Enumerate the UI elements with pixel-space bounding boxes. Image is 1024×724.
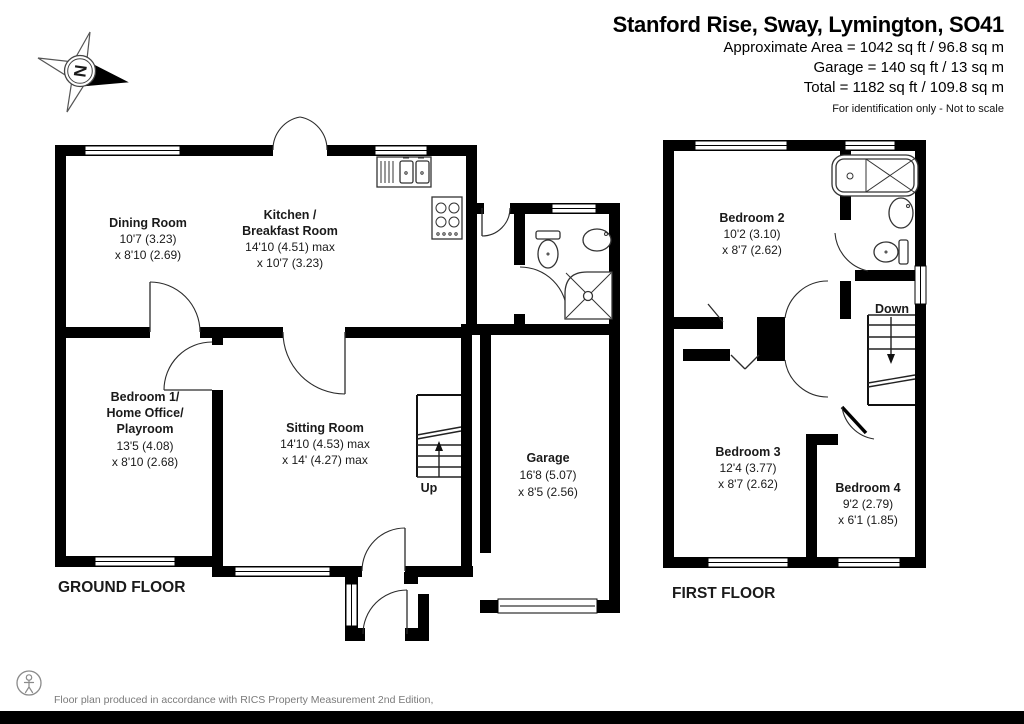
ground-floor-plan: Dining Room 10'7 (3.23) x 8'10 (2.69) Ki… — [55, 117, 620, 641]
bedroom3-label: Bedroom 3 — [715, 445, 780, 459]
bathtub-icon — [832, 155, 918, 196]
first-floor-plan: Bedroom 2 10'2 (3.10) x 8'7 (2.62) Bedro… — [663, 140, 926, 602]
ground-floor-room-labels: Dining Room 10'7 (3.23) x 8'10 (2.69) Ki… — [106, 208, 577, 499]
footer-line-1: Floor plan produced in accordance with R… — [54, 694, 558, 707]
bedroom3-dim1: 12'4 (3.77) — [720, 461, 777, 475]
dining-room-label: Dining Room — [109, 216, 187, 230]
bedroom3-dim2: x 8'7 (2.62) — [718, 477, 778, 491]
sitting-room-dim1: 14'10 (4.53) max — [280, 437, 370, 451]
first-floor-doors — [708, 233, 874, 439]
bedroom2-dim1: 10'2 (3.10) — [724, 227, 781, 241]
bedroom4-label: Bedroom 4 — [835, 481, 900, 495]
bedroom2-label: Bedroom 2 — [719, 211, 784, 225]
first-floor-stairs — [868, 315, 915, 405]
ground-floor-title: GROUND FLOOR — [58, 579, 185, 596]
stairs-down-label: Down — [875, 302, 909, 316]
bedroom2-dim2: x 8'7 (2.62) — [722, 243, 782, 257]
total-area-line: Total = 1182 sq ft / 109.8 sq m — [613, 78, 1004, 98]
header-block: Stanford Rise, Sway, Lymington, SO41 App… — [613, 12, 1004, 115]
bedroom1-dim2: x 8'10 (2.68) — [112, 455, 178, 469]
ground-floor-stairs — [417, 395, 461, 477]
person-icon — [16, 668, 42, 698]
sitting-room-dim2: x 14' (4.27) max — [282, 453, 368, 467]
page-title: Stanford Rise, Sway, Lymington, SO41 — [613, 12, 1004, 38]
compass-rose-icon: N — [38, 32, 127, 112]
bedroom1-label-3: Playroom — [117, 422, 174, 436]
dining-room-dim1: 10'7 (3.23) — [120, 232, 177, 246]
garage-area-line: Garage = 140 sq ft / 13 sq m — [613, 58, 1004, 78]
kitchen-dim1: 14'10 (4.51) max — [245, 240, 335, 254]
dining-room-dim2: x 8'10 (2.69) — [115, 248, 181, 262]
floorplan-page: Stanford Rise, Sway, Lymington, SO41 App… — [0, 0, 1024, 724]
disclaimer-text: For identification only - Not to scale — [613, 103, 1004, 115]
kitchen-dim2: x 10'7 (3.23) — [257, 256, 323, 270]
kitchen-label-1: Kitchen / — [264, 208, 317, 222]
bottom-black-bar — [0, 711, 1024, 724]
bathroom-basin-icon — [889, 198, 913, 228]
kitchen-sink-icon — [377, 157, 431, 187]
bedroom1-label-1: Bedroom 1/ — [111, 390, 180, 404]
approx-area-line: Approximate Area = 1042 sq ft / 96.8 sq … — [613, 38, 1004, 58]
shower-icon — [565, 272, 612, 319]
bedroom1-dim1: 13'5 (4.08) — [117, 439, 174, 453]
kitchen-hob-icon — [432, 197, 462, 239]
garage-dim2: x 8'5 (2.56) — [518, 485, 578, 499]
first-floor-title: FIRST FLOOR — [672, 585, 775, 602]
stairs-up-label: Up — [421, 481, 438, 495]
bedroom1-label-2: Home Office/ — [106, 406, 184, 420]
garage-door — [498, 599, 597, 613]
bedroom4-dim1: 9'2 (2.79) — [843, 497, 893, 511]
shower-room-fixtures — [536, 229, 612, 319]
kitchen-label-2: Breakfast Room — [242, 224, 338, 238]
sitting-room-label: Sitting Room — [286, 421, 364, 435]
bathroom-toilet-icon — [874, 240, 908, 264]
compass-north-label: N — [70, 64, 91, 79]
toilet-icon — [536, 231, 560, 239]
garage-label: Garage — [526, 451, 569, 465]
bedroom4-dim2: x 6'1 (1.85) — [838, 513, 898, 527]
garage-dim1: 16'8 (5.07) — [520, 468, 577, 482]
